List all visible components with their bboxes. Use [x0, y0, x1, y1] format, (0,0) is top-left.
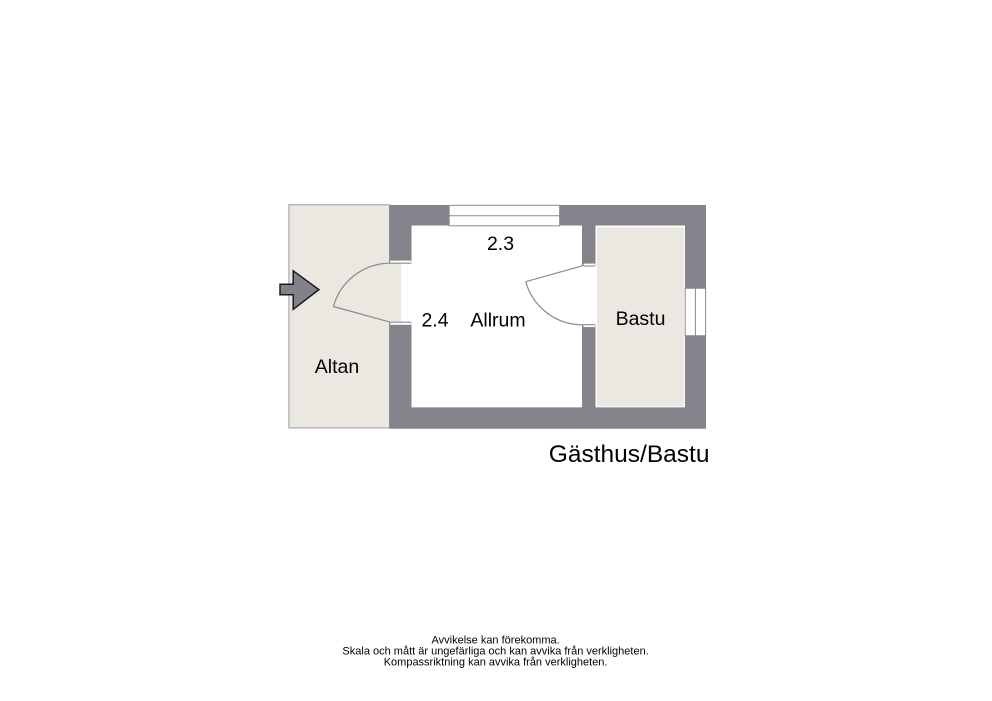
svg-text:Bastu: Bastu	[616, 308, 666, 330]
svg-text:Gästhus/Bastu: Gästhus/Bastu	[549, 441, 710, 468]
svg-text:Altan: Altan	[315, 356, 359, 378]
svg-text:2.3: 2.3	[487, 233, 514, 255]
svg-text:Allrum: Allrum	[470, 310, 525, 332]
svg-text:Kompassriktning kan avvika frå: Kompassriktning kan avvika från verkligh…	[384, 657, 608, 669]
svg-text:Skala och mått är ungefärliga: Skala och mått är ungefärliga och kan av…	[342, 645, 648, 657]
svg-text:2.4: 2.4	[421, 310, 448, 332]
